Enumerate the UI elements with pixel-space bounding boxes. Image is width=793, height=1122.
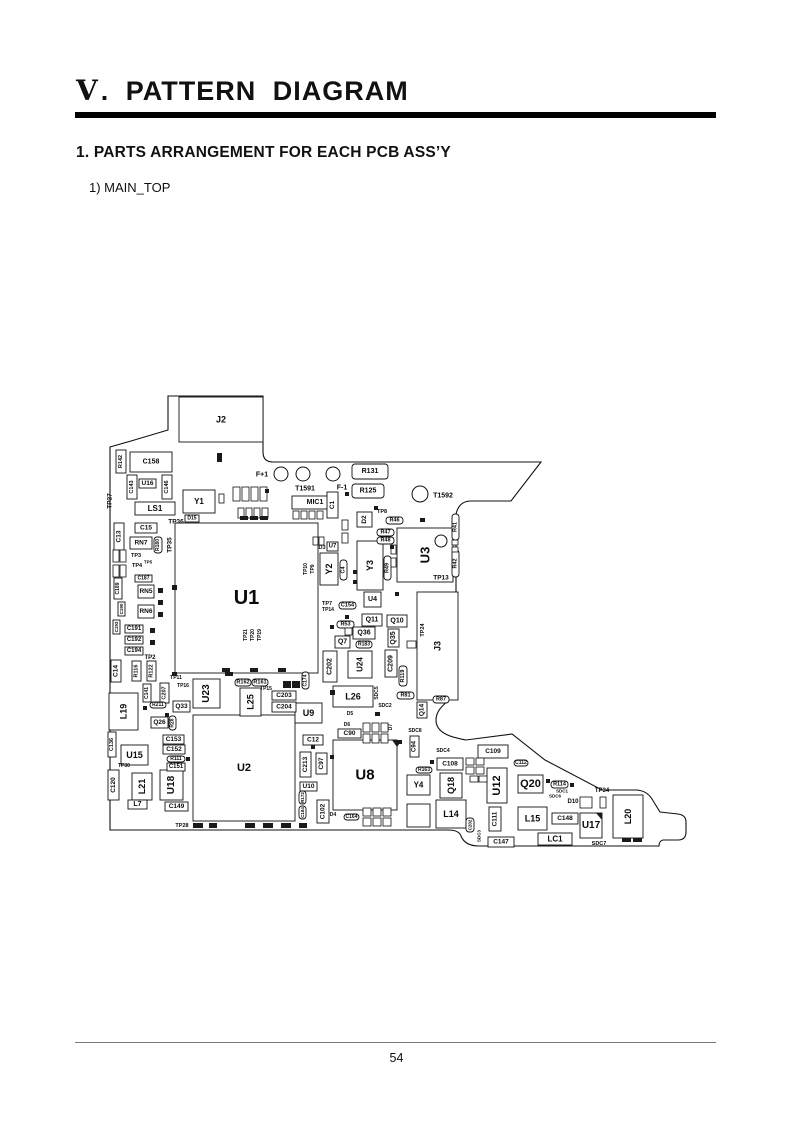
svg-text:C14: C14 (113, 665, 120, 677)
component-u8: U8 (333, 740, 397, 810)
svg-text:C149: C149 (169, 803, 185, 810)
solder-pad (375, 712, 380, 716)
svg-text:C164: C164 (346, 814, 358, 820)
svg-text:C187: C187 (138, 576, 150, 582)
svg-text:R111: R111 (170, 756, 182, 762)
solder-pad (143, 706, 147, 710)
component-ls1: LS1 (135, 502, 175, 515)
svg-text:C136: C136 (109, 738, 115, 751)
solder-pad (225, 672, 233, 676)
svg-text:R163: R163 (418, 767, 430, 773)
test-point-circle (274, 467, 288, 481)
svg-text:C102: C102 (320, 803, 327, 819)
solder-pad (622, 838, 631, 842)
pad (466, 758, 474, 765)
pad (309, 511, 315, 519)
component-r116: R116 (132, 661, 141, 681)
solder-pad (172, 585, 177, 590)
svg-text:Q26: Q26 (153, 719, 166, 726)
svg-text:R125: R125 (360, 488, 377, 495)
solder-pad (395, 592, 399, 596)
component-c194: C194 (125, 647, 143, 655)
component-rn6: RN6 (138, 605, 154, 618)
pad (363, 808, 371, 816)
component-c213: C213 (300, 752, 311, 777)
solder-pad (263, 823, 273, 828)
component-c136: C136 (108, 732, 116, 757)
pad (373, 808, 381, 816)
pad (372, 734, 379, 743)
svg-text:U1: U1 (234, 587, 260, 609)
component-y2: Y2 (320, 553, 338, 585)
svg-text:C190: C190 (119, 603, 124, 614)
component-rn7: RN7 (130, 537, 152, 549)
svg-text:C109: C109 (485, 748, 501, 755)
solder-pad (158, 588, 163, 593)
pad (120, 565, 126, 577)
component-c108: C108 (437, 758, 463, 770)
component-r180: R180 (154, 537, 162, 553)
component-u10: U10 (300, 782, 317, 791)
solder-pad (150, 628, 155, 633)
pad (251, 487, 258, 501)
component-r47: R47 (377, 529, 394, 536)
pad (466, 767, 474, 774)
solder-pad (299, 823, 307, 828)
pad (293, 511, 299, 519)
component-r131: R131 (352, 464, 388, 479)
solder-pad (345, 492, 349, 496)
svg-text:R53: R53 (340, 622, 350, 628)
svg-text:C202: C202 (468, 819, 473, 830)
svg-text:L14: L14 (443, 809, 459, 819)
component-r87: R87 (433, 696, 449, 703)
component-u24: U24 (348, 651, 372, 678)
label-tp34: TP34 (595, 788, 610, 794)
pad (363, 734, 370, 743)
svg-text:Q20: Q20 (520, 778, 541, 790)
svg-text:U24: U24 (356, 657, 365, 672)
svg-text:C189: C189 (115, 582, 121, 594)
component-c12: C12 (303, 735, 323, 745)
svg-text:C151: C151 (169, 764, 184, 770)
svg-text:Q18: Q18 (446, 777, 456, 794)
svg-text:R172: R172 (300, 792, 305, 803)
component-c97: C97 (316, 753, 327, 774)
pad (233, 487, 240, 501)
svg-text:C209: C209 (388, 655, 395, 672)
component-d15: D15 (185, 515, 199, 522)
solder-pad (330, 690, 335, 695)
svg-text:C97: C97 (318, 757, 325, 769)
component-r111: R111 (167, 756, 185, 762)
pad (381, 723, 388, 732)
svg-text:R211: R211 (152, 702, 164, 708)
label-tp3: TP3 (131, 553, 141, 559)
svg-text:R162: R162 (236, 680, 249, 686)
svg-text:Q14: Q14 (419, 703, 426, 716)
component-r161: R161 (252, 679, 268, 686)
component-c148: C148 (552, 813, 578, 824)
component-c192: C192 (125, 636, 143, 644)
svg-text:C147: C147 (493, 839, 509, 846)
svg-text:R180: R180 (155, 539, 161, 551)
component-q26: Q26 (151, 717, 168, 728)
component-q35: Q35 (388, 629, 399, 647)
solder-pad (353, 570, 357, 574)
solder-pad (353, 580, 357, 584)
test-point-circle (326, 467, 340, 481)
label-tp5: TP5 (144, 560, 153, 565)
component-c164: C164 (344, 814, 359, 820)
solder-pad (209, 823, 217, 828)
svg-text:Q11: Q11 (366, 617, 379, 624)
pad (373, 818, 381, 826)
svg-text:C12: C12 (307, 737, 319, 744)
svg-text:C1: C1 (329, 500, 336, 509)
label-sdc7: SDC7 (592, 841, 607, 847)
svg-text:C184: C184 (300, 807, 305, 818)
svg-text:C120: C120 (110, 777, 117, 793)
pad (113, 565, 119, 577)
component-c153: C153 (163, 735, 184, 744)
label-sdc4: SDC4 (436, 748, 450, 754)
label-d6: D6 (344, 722, 351, 728)
solder-pad (240, 516, 248, 520)
component-r49: R49 (384, 556, 391, 580)
svg-text:Y4: Y4 (414, 781, 424, 790)
component-q18: Q18 (440, 773, 462, 798)
solder-pad (278, 668, 286, 672)
component-r28: R28 (169, 716, 176, 730)
solder-pad (250, 668, 258, 672)
svg-text:R142: R142 (118, 455, 124, 468)
solder-pad (570, 783, 574, 787)
svg-text:C111: C111 (492, 811, 499, 826)
svg-text:R183: R183 (358, 642, 370, 648)
svg-text:C90: C90 (344, 730, 356, 737)
component-c209: C209 (385, 650, 397, 677)
svg-text:U18: U18 (166, 775, 177, 794)
label-tp10: TP10 (303, 563, 309, 575)
component-u23: U23 (193, 679, 220, 708)
label-sdc2: SDC2 (378, 703, 392, 709)
pad (580, 797, 592, 808)
svg-text:L15: L15 (525, 814, 541, 824)
svg-text:U3: U3 (418, 547, 433, 564)
component-c149: C149 (165, 802, 188, 811)
solder-pad (430, 760, 434, 764)
component-u4: U4 (364, 592, 381, 607)
solder-pad (158, 600, 163, 605)
component-c15: C15 (135, 523, 157, 533)
svg-text:R47: R47 (380, 530, 390, 536)
pad (301, 511, 307, 519)
component-r42: R42 (452, 550, 459, 577)
component-q14: Q14 (417, 702, 427, 718)
svg-text:C108: C108 (442, 761, 458, 768)
pad (363, 723, 370, 732)
pad (342, 533, 348, 543)
svg-text:RN6: RN6 (139, 608, 152, 615)
pad (113, 550, 119, 562)
svg-text:R87: R87 (436, 697, 446, 703)
solder-pad (165, 713, 169, 717)
test-point-circle (412, 486, 428, 502)
pad (452, 547, 458, 552)
component-c202: C202 (466, 818, 474, 832)
component-c146: C146 (162, 475, 172, 499)
pad (317, 511, 323, 519)
component-u16: U16 (139, 479, 156, 488)
component-r162: R162 (235, 679, 251, 686)
label-d5: D5 (347, 711, 354, 717)
svg-text:C154: C154 (341, 603, 355, 609)
solder-pad (374, 506, 378, 510)
component-u18: U18 (160, 770, 183, 800)
solder-pad (186, 757, 190, 761)
svg-text:Q7: Q7 (338, 639, 347, 646)
svg-text:C194: C194 (127, 648, 142, 654)
component-c174: C174 (302, 672, 309, 689)
svg-text:C15: C15 (140, 525, 152, 532)
svg-text:R81: R81 (400, 693, 410, 699)
solder-pad (420, 518, 425, 522)
svg-text:C143: C143 (129, 480, 135, 493)
component-r211: R211 (150, 702, 166, 708)
component-c94: C94 (410, 736, 419, 757)
svg-text:J3: J3 (433, 641, 443, 651)
footer-divider (75, 1042, 716, 1043)
solder-pad (345, 615, 349, 619)
component-u17: U17 (580, 813, 602, 838)
label-tp16: TP16 (177, 683, 189, 689)
svg-text:C202: C202 (327, 658, 334, 675)
component-c151: C151 (167, 763, 185, 771)
svg-text:U15: U15 (126, 750, 143, 760)
svg-text:U12: U12 (491, 775, 503, 795)
svg-text:D2: D2 (361, 515, 368, 524)
svg-text:Q10: Q10 (390, 618, 403, 625)
svg-text:R114: R114 (553, 782, 567, 788)
label-tp9: TP9 (310, 564, 316, 573)
pad (452, 540, 458, 545)
svg-text:C193: C193 (114, 621, 119, 632)
pad (383, 808, 391, 816)
svg-text:C203: C203 (276, 692, 292, 699)
component-r125: R125 (352, 484, 384, 498)
component-y3: Y3 (357, 541, 383, 590)
component-c189: C189 (114, 578, 122, 599)
label-tp19: TP19 (257, 629, 263, 641)
label-tp27: TP27 (107, 493, 114, 509)
label-tp2: TP2 (144, 655, 156, 661)
component-u12: U12 (487, 768, 507, 803)
label-tp15: TP15 (260, 686, 272, 692)
component-c187: C187 (135, 575, 152, 582)
svg-text:Q35: Q35 (390, 631, 397, 644)
solder-pad (193, 823, 203, 828)
component-r53: R53 (337, 621, 354, 628)
svg-text:R46: R46 (389, 518, 399, 524)
svg-text:Q36: Q36 (357, 630, 370, 637)
component-c143: C143 (127, 475, 137, 499)
pad (345, 628, 352, 635)
svg-text:R28: R28 (170, 718, 176, 727)
solder-pad (546, 779, 550, 783)
component-c14: C14 (111, 660, 121, 682)
svg-text:C192: C192 (127, 637, 142, 643)
component-c111: C111 (489, 807, 501, 831)
component-c193: C193 (113, 620, 120, 634)
label-tp14: TP14 (322, 607, 334, 613)
svg-text:R119: R119 (400, 670, 406, 683)
label-sdc3: SDC3 (477, 830, 482, 843)
svg-text:U9: U9 (303, 708, 315, 718)
solder-pad (150, 640, 155, 645)
solder-pad (330, 625, 334, 629)
svg-text:U8: U8 (355, 767, 374, 784)
label-f-1: F-1 (337, 485, 348, 492)
component-l15: L15 (518, 807, 547, 830)
component-d2: D2 (357, 512, 372, 527)
svg-text:R161: R161 (253, 680, 266, 686)
svg-text:MIC1: MIC1 (307, 499, 324, 506)
svg-text:RN7: RN7 (134, 540, 147, 547)
test-point-circle (296, 467, 310, 481)
svg-text:R131: R131 (362, 468, 379, 475)
component-c154: C154 (339, 602, 356, 609)
component-r81: R81 (397, 692, 414, 699)
svg-text:L25: L25 (246, 694, 256, 710)
component-u7: U7 (327, 542, 338, 551)
label-sdc5: SDC5 (374, 686, 380, 700)
pcb-diagram: J2U1U2U8U3J3U23L25U9L26U24C202C209L19U15… (0, 0, 793, 1122)
svg-text:U23: U23 (201, 684, 212, 703)
svg-text:C13: C13 (116, 530, 123, 542)
component-l14: L14 (436, 800, 466, 828)
svg-text:Y1: Y1 (194, 497, 204, 506)
svg-text:C152: C152 (166, 746, 182, 753)
component-r46: R46 (386, 517, 403, 524)
component-c90: C90 (338, 729, 361, 738)
pad (476, 767, 484, 774)
svg-text:R116: R116 (134, 665, 140, 678)
component-c152: C152 (163, 745, 185, 754)
component-l7: L7 (128, 800, 147, 809)
svg-text:LC1: LC1 (547, 835, 563, 844)
component-c207: C207 (160, 683, 169, 703)
solder-pad (292, 681, 300, 688)
pad (342, 520, 348, 530)
solder-pad (330, 755, 334, 759)
component-c184: C184 (299, 806, 306, 819)
component-c13: C13 (114, 523, 124, 550)
component-c191: C191 (125, 625, 143, 633)
svg-text:L21: L21 (137, 779, 147, 795)
svg-text:R41: R41 (453, 522, 459, 532)
solder-pad (245, 823, 255, 828)
component-c204: C204 (272, 702, 296, 712)
svg-text:C112: C112 (515, 760, 527, 766)
pad (363, 818, 371, 826)
svg-text:Y2: Y2 (324, 563, 334, 574)
svg-text:U7: U7 (329, 544, 337, 550)
component-c147: C147 (488, 837, 514, 847)
document-page: Ⅴ. PATTERN DIAGRAM 1. PARTS ARRANGEMENT … (0, 0, 793, 1122)
label-sdc6: SDC6 (549, 794, 562, 799)
svg-text:Q33: Q33 (175, 703, 188, 710)
label-tp30: TP30 (118, 763, 130, 769)
label-d3: D3 (318, 545, 325, 551)
component-r119: R119 (399, 666, 407, 686)
component-r163: R163 (416, 767, 432, 773)
solder-pad (172, 672, 177, 676)
label-tp13: TP13 (433, 575, 449, 582)
svg-text:C153: C153 (166, 736, 182, 743)
pad (242, 487, 249, 501)
label-tp24: TP24 (420, 622, 426, 636)
label-tp28: TP28 (175, 823, 188, 829)
label-sdc8: SDC8 (408, 728, 422, 734)
component-q10: Q10 (387, 615, 407, 627)
component-c158: C158 (130, 452, 172, 472)
pad (372, 723, 379, 732)
component-c4: C4 (340, 560, 347, 580)
solder-pad (222, 668, 230, 672)
svg-text:C146: C146 (164, 480, 170, 493)
svg-text:R122: R122 (149, 664, 155, 677)
test-point-circle (435, 535, 447, 547)
component-r114: R114 (551, 781, 568, 788)
pad (319, 537, 324, 545)
component-q7: Q7 (335, 636, 350, 648)
pad (479, 776, 487, 782)
svg-text:U2: U2 (237, 762, 251, 774)
component-l25: L25 (240, 688, 261, 716)
component-r41: R41 (452, 514, 459, 540)
component-l20: L20 (613, 795, 643, 838)
component-blank (407, 804, 430, 827)
solder-pad (311, 745, 315, 749)
component-l19: L19 (109, 693, 138, 730)
pad (391, 558, 396, 567)
component-u1: U1 (175, 523, 318, 673)
svg-text:R49: R49 (385, 563, 391, 573)
label-d4: D4 (330, 812, 337, 818)
component-c203: C203 (272, 691, 296, 700)
label-tp35: TP35 (167, 537, 174, 553)
component-rn5: RN5 (138, 585, 154, 598)
component-c102: C102 (317, 800, 329, 823)
pad (407, 641, 416, 648)
svg-text:J2: J2 (216, 415, 226, 425)
solder-pad (217, 453, 222, 462)
pad (470, 776, 478, 782)
component-c190: C190 (118, 602, 125, 616)
pad (219, 494, 224, 503)
svg-text:L20: L20 (623, 809, 633, 825)
solder-pad (283, 681, 291, 688)
svg-text:U16: U16 (142, 480, 154, 487)
svg-text:L7: L7 (133, 801, 141, 808)
pad (383, 818, 391, 826)
component-q20: Q20 (518, 775, 543, 793)
label-tp36: TP36 (168, 519, 184, 526)
svg-text:U17: U17 (582, 820, 601, 831)
pad (381, 734, 388, 743)
label-tp4: TP4 (132, 563, 143, 569)
